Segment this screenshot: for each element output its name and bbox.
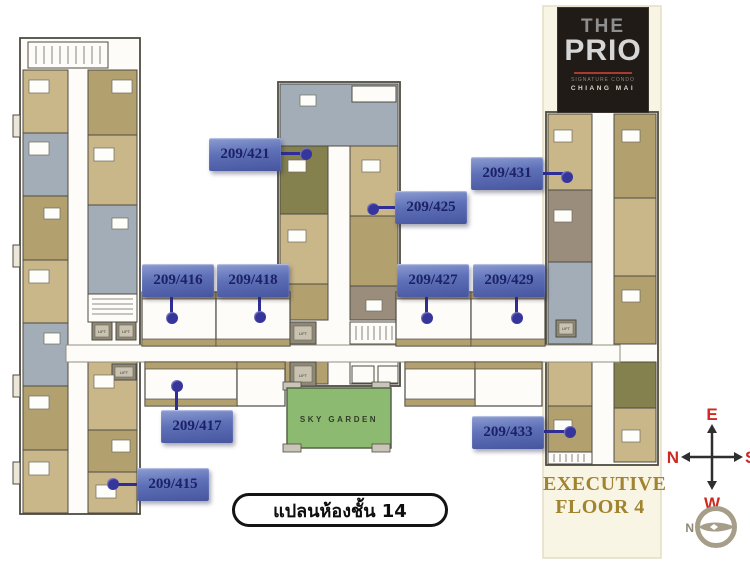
lift-label: LIFT <box>122 329 131 334</box>
logo-divider <box>574 72 632 74</box>
lift-box: LIFT <box>116 322 136 340</box>
callout-line <box>175 390 178 410</box>
stairwell-right <box>548 452 592 464</box>
sky-garden-label: SKY GARDEN <box>300 415 378 424</box>
unit-marker-dot <box>564 426 576 438</box>
arrow-down-icon <box>707 481 717 490</box>
compass-rose: E N S W <box>667 405 750 513</box>
lift-box: LIFT <box>92 322 112 340</box>
lift-label: LIFT <box>299 373 308 378</box>
arrow-left-icon <box>681 452 690 462</box>
unit-callout-209-421: 209/421 <box>209 138 281 171</box>
unit-marker-dot <box>171 380 183 392</box>
unit-callout-209-425: 209/425 <box>395 191 467 224</box>
unit-callout-209-431: 209/431 <box>471 157 543 190</box>
unit-marker-dot <box>421 312 433 324</box>
stairwell-lobby <box>88 294 137 322</box>
unit-marker-dot <box>166 312 178 324</box>
unit-marker-dot <box>511 312 523 324</box>
executive-line2: FLOOR 4 <box>543 496 657 519</box>
stairwell-middle <box>350 322 398 344</box>
arrow-right-icon <box>734 452 743 462</box>
unit-marker-dot <box>254 311 266 323</box>
lift-label: LIFT <box>98 329 107 334</box>
compass-east: E <box>706 405 717 424</box>
lift-box: LIFT <box>556 320 576 337</box>
callout-line <box>117 483 139 486</box>
unit-marker-dot <box>561 171 573 183</box>
compass-badge-n: N <box>685 521 694 535</box>
unit-callout-209-433: 209/433 <box>472 416 544 449</box>
logo-prio: PRIO <box>558 35 648 67</box>
sky-garden: SKY GARDEN <box>283 382 391 452</box>
right-wing <box>546 112 658 465</box>
unit-callout-209-427: 209/427 <box>397 264 469 297</box>
callout-line <box>543 172 563 175</box>
unit-marker-dot <box>367 203 379 215</box>
unit-callout-209-416: 209/416 <box>142 264 214 297</box>
lift-label: LIFT <box>299 331 308 336</box>
executive-line1: EXECUTIVE <box>543 473 657 496</box>
callout-line <box>544 430 566 433</box>
compass-north: N <box>667 448 679 467</box>
compass-south: S <box>745 448 750 467</box>
executive-floor-label: EXECUTIVE FLOOR 4 <box>543 473 657 519</box>
unit-marker-dot <box>300 148 312 160</box>
unit-marker-dot <box>107 478 119 490</box>
logo-the: THE <box>558 19 648 35</box>
floor-label-text: แปลนห้องชั้น 14 <box>273 496 407 525</box>
lift-label: LIFT <box>120 370 129 375</box>
arrow-up-icon <box>707 424 717 433</box>
unit-callout-209-418: 209/418 <box>217 264 289 297</box>
lift-label: LIFT <box>562 326 571 331</box>
unit-callout-209-415: 209/415 <box>137 468 209 501</box>
unit-callout-209-417: 209/417 <box>161 410 233 443</box>
prio-logo: THE PRIO SIGNATURE CONDO CHIANG MAI <box>558 8 648 112</box>
corridor <box>66 345 620 362</box>
stairwell-top <box>28 42 108 68</box>
callout-line <box>378 206 396 209</box>
lift-box: LIFT <box>290 322 316 344</box>
compass-badge: N <box>685 509 734 546</box>
logo-tagline: SIGNATURE CONDO <box>558 77 648 83</box>
floorplan-page: LIFT LIFT LIFT LIFT LIFT <box>0 0 750 568</box>
floor-label-pill: แปลนห้องชั้น 14 <box>232 493 448 527</box>
logo-city: CHIANG MAI <box>558 85 648 92</box>
lift-box: LIFT <box>112 364 136 380</box>
unit-callout-209-429: 209/429 <box>473 264 545 297</box>
